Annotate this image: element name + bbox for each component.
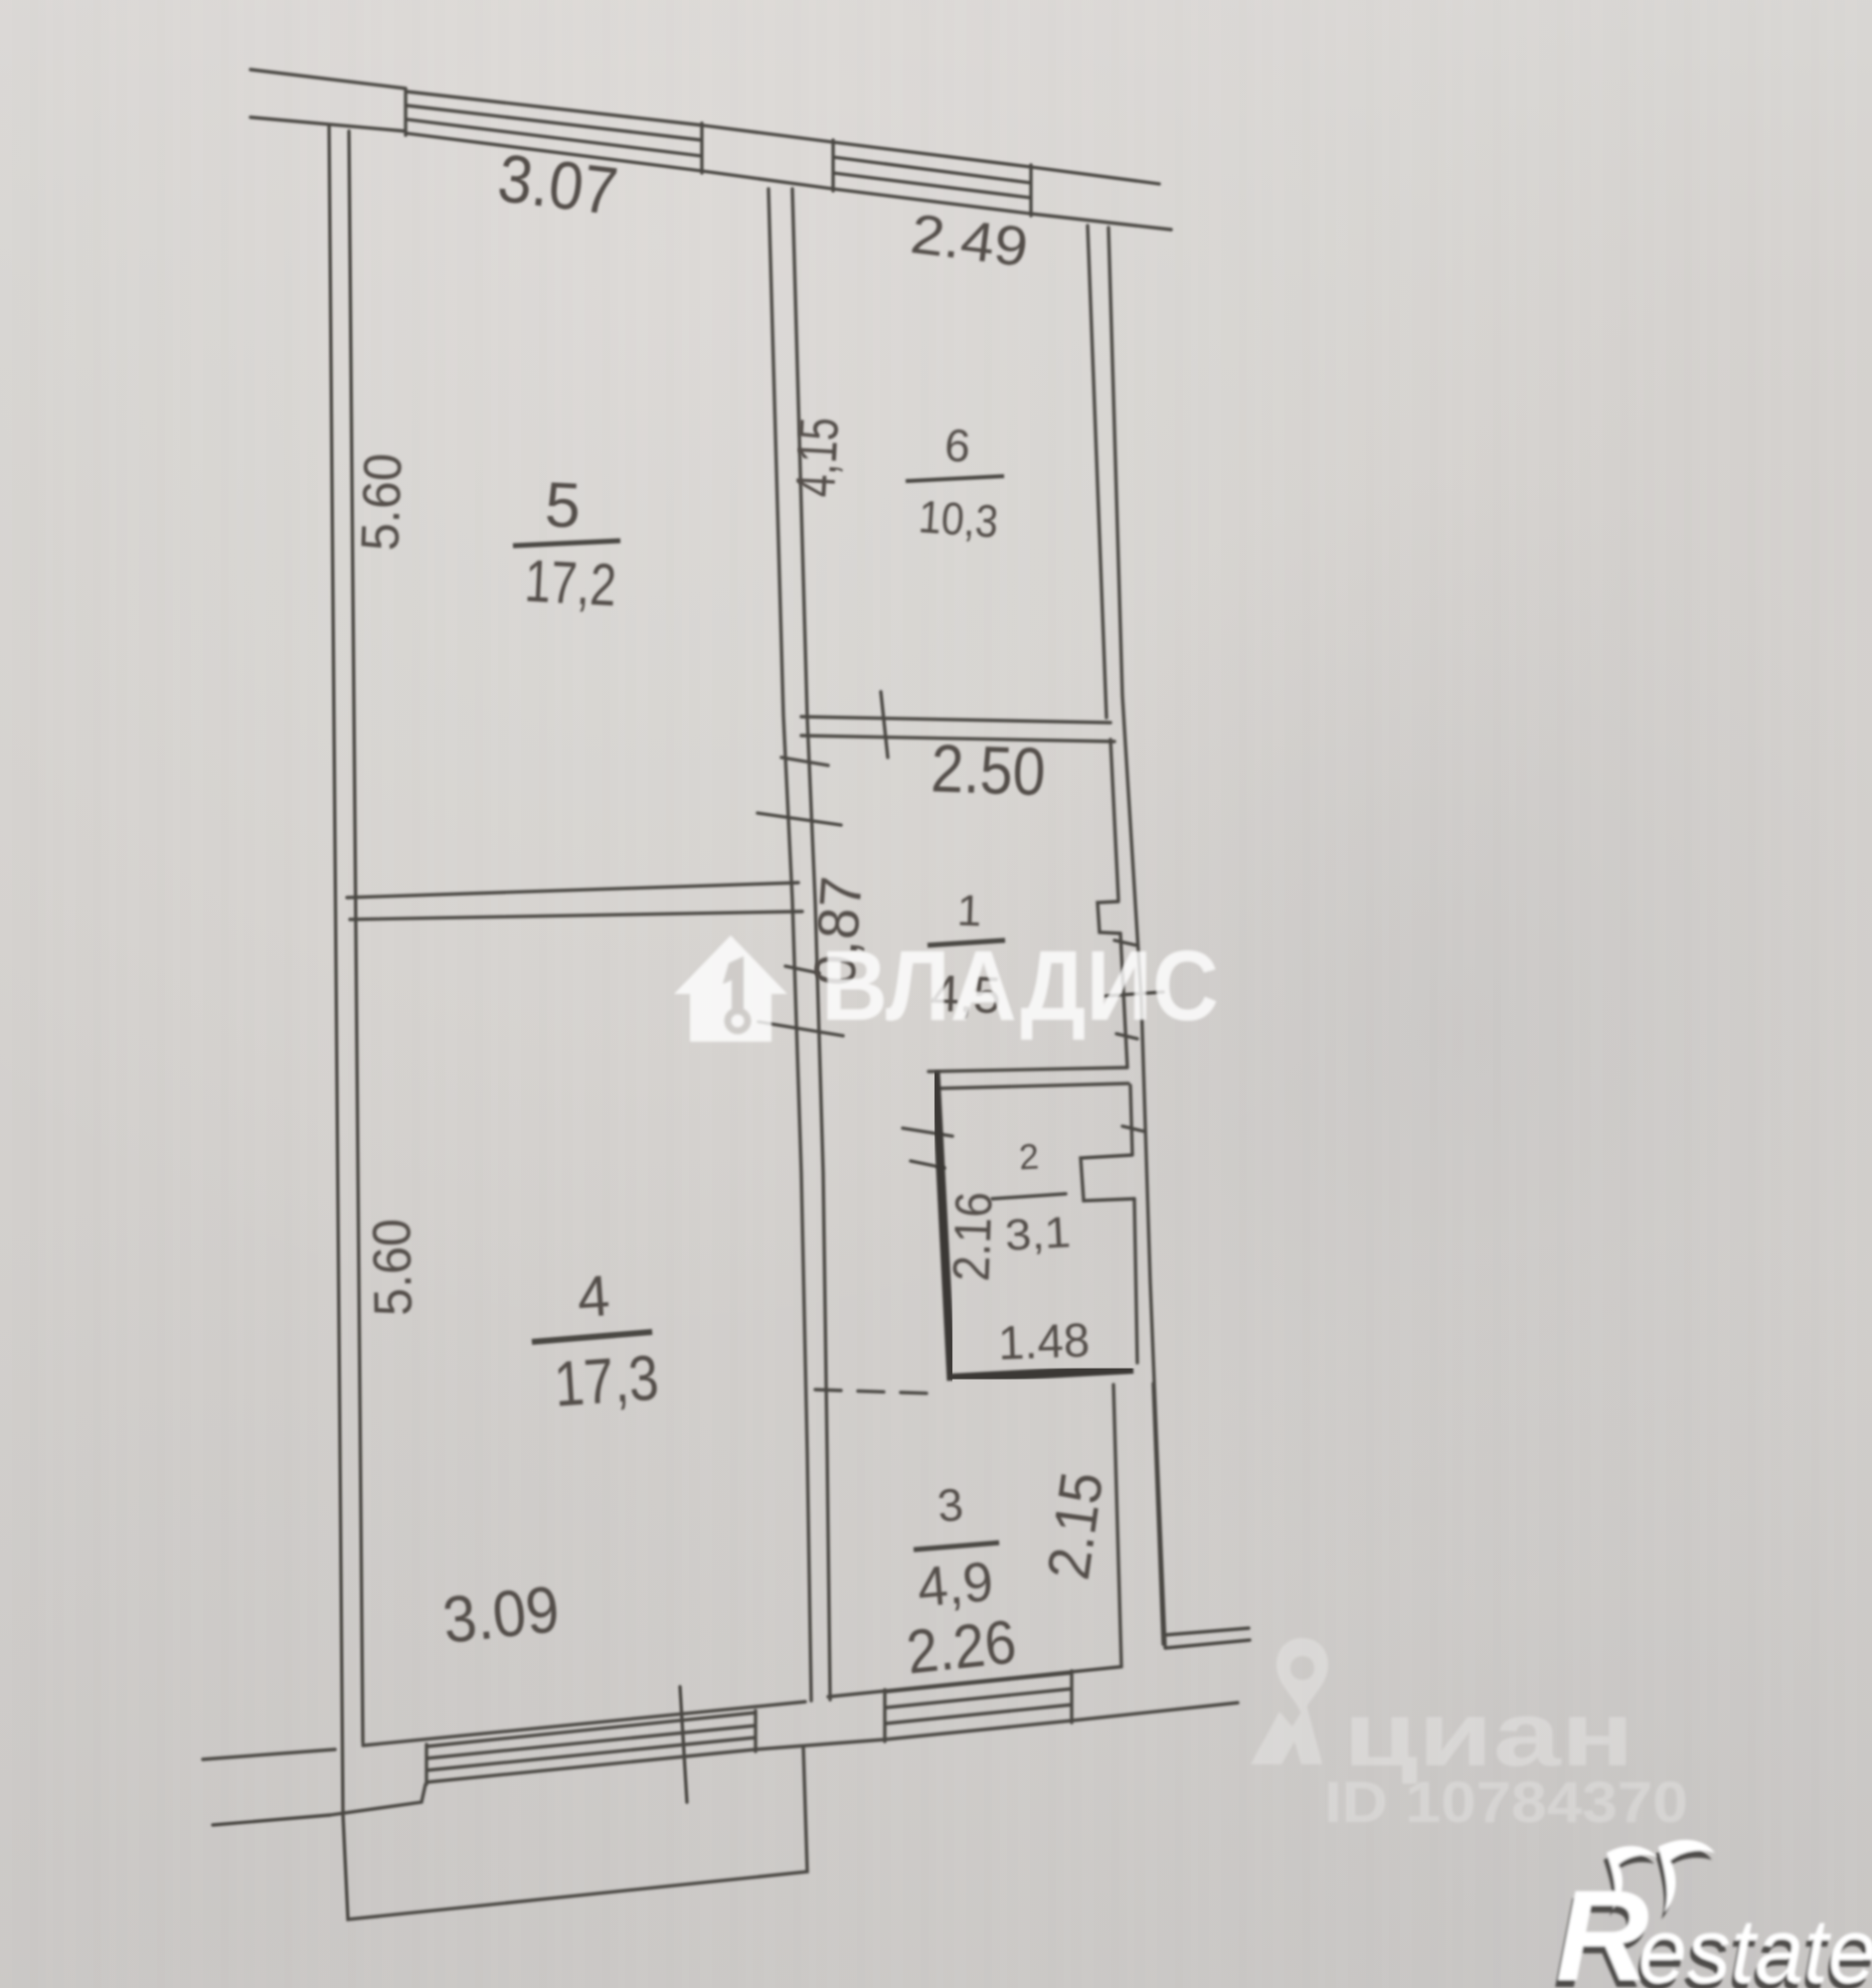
svg-text:2.26: 2.26 (904, 1607, 1020, 1687)
svg-text:2.16: 2.16 (942, 1191, 1003, 1282)
svg-text:4,15: 4,15 (783, 415, 850, 498)
svg-text:3.07: 3.07 (494, 140, 621, 230)
svg-text:5.60: 5.60 (362, 1218, 424, 1316)
svg-text:2: 2 (1018, 1136, 1040, 1178)
svg-text:R: R (1556, 1863, 1649, 1988)
svg-text:10,3: 10,3 (917, 490, 999, 547)
svg-text:5: 5 (544, 468, 583, 542)
svg-text:2.50: 2.50 (930, 731, 1047, 810)
svg-text:3,1: 3,1 (1004, 1208, 1072, 1259)
svg-text:1: 1 (956, 887, 982, 936)
svg-text:5.60: 5.60 (350, 452, 413, 552)
svg-text:1.48: 1.48 (997, 1314, 1091, 1370)
svg-text:3: 3 (936, 1478, 965, 1532)
svg-text:17,2: 17,2 (523, 548, 617, 619)
svg-text:ID 10784370: ID 10784370 (1324, 1770, 1688, 1835)
svg-text:6: 6 (942, 418, 971, 472)
svg-text:3.09: 3.09 (439, 1572, 563, 1657)
svg-text:17,3: 17,3 (552, 1341, 661, 1419)
svg-text:estate: estate (1638, 1901, 1872, 1988)
svg-text:4,9: 4,9 (915, 1550, 995, 1618)
svg-text:4: 4 (576, 1263, 612, 1330)
svg-text:ВЛАДИС: ВЛАДИС (821, 930, 1219, 1042)
